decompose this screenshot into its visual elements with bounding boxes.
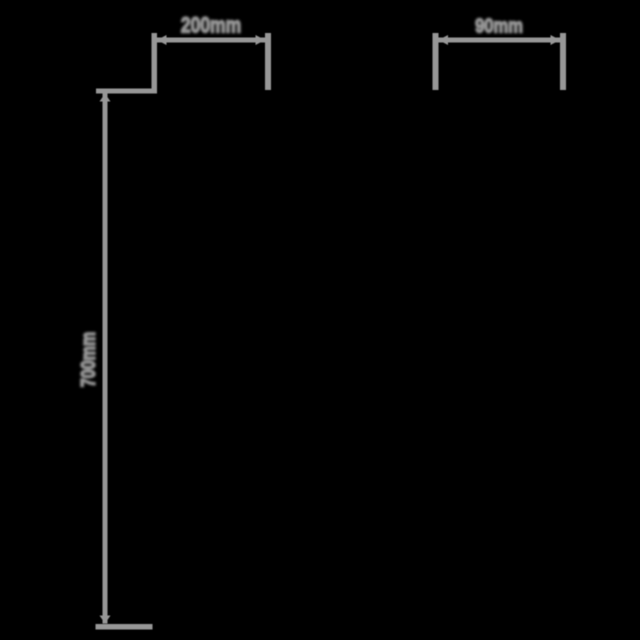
svg-text:700mm: 700mm [77,332,99,387]
svg-text:200mm: 200mm [181,14,241,38]
svg-text:90mm: 90mm [475,14,523,37]
